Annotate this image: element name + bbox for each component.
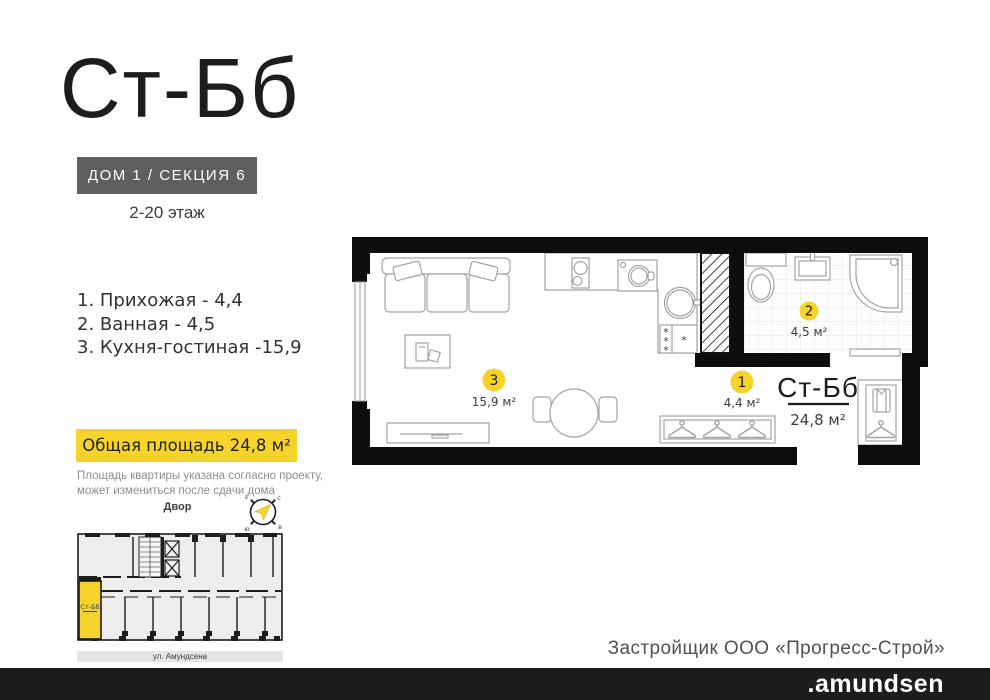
room-list-item: 1. Прихожая - 4,4 (77, 289, 302, 313)
compass-n: с (277, 494, 281, 502)
window (355, 282, 365, 401)
disclaimer-line: может измениться после сдачи дома (77, 484, 337, 499)
kitchen-counter (545, 253, 702, 353)
street-label: ул. Амундсена (77, 651, 283, 662)
room-1-area: 4,4 м² (724, 396, 761, 410)
room-list-item: 2. Ванная - 4,5 (77, 313, 302, 337)
room-list: 1. Прихожая - 4,4 2. Ванная - 4,5 3. Кух… (77, 289, 302, 360)
compass-s: ю (244, 525, 250, 533)
desk (405, 335, 450, 368)
room-2-number: 2 (805, 305, 813, 320)
bath-shelf (746, 253, 786, 266)
compass-icon: с в ю з (240, 490, 288, 536)
mini-highlighted-unit: Ст-Бб (79, 581, 101, 639)
total-area-badge: Общая площадь 24,8 м² (76, 429, 297, 462)
mini-stairs (139, 537, 161, 577)
page-title: Ст-Бб (55, 46, 305, 130)
unit-total-area: 24,8 м² (790, 411, 846, 429)
apartment-floor-plan: *** * (352, 237, 928, 465)
tv-stand (387, 423, 489, 443)
disclaimer-line: Площадь квартиры указана согласно проект… (77, 469, 337, 484)
room-1-number: 1 (738, 375, 747, 391)
mini-unit-label: Ст-Бб (80, 603, 99, 611)
developer-label: Застройщик ООО «Прогресс-Строй» (608, 638, 945, 660)
shirt-icon (873, 389, 890, 412)
compass-w: з (244, 493, 248, 501)
bath-threshold (850, 349, 900, 356)
wardrobe (858, 380, 903, 445)
shaft-hatched (701, 253, 730, 353)
brand-logo: .amundsen (808, 670, 944, 699)
hanger-rack (660, 416, 775, 443)
disclaimer-text: Площадь квартиры указана согласно проект… (77, 469, 337, 499)
section-badge: ДОМ 1 / СЕКЦИЯ 6 (77, 157, 257, 194)
unit-label-block: Ст-Бб 24,8 м² (777, 372, 859, 429)
floors-label: 2-20 этаж (77, 203, 257, 223)
room-2-area: 4,5 м² (791, 325, 828, 339)
svg-text:*: * (681, 334, 687, 347)
flyer-page: Ст-Бб ДОМ 1 / СЕКЦИЯ 6 2-20 этаж 1. Прих… (0, 0, 990, 700)
dining-table (533, 389, 617, 437)
compass-e: в (278, 523, 282, 531)
sofa (382, 258, 510, 312)
room-list-item: 3. Кухня-гостиная -15,9 (77, 336, 302, 360)
mini-floor-plan: Ст-Бб (77, 533, 283, 641)
room-3-area: 15,9 м² (472, 395, 517, 409)
bottom-bar: .amundsen (0, 668, 990, 700)
yard-label: Двор (140, 501, 215, 513)
svg-text:*: * (663, 344, 669, 357)
room-3-number: 3 (490, 373, 499, 389)
unit-name: Ст-Бб (777, 372, 859, 403)
